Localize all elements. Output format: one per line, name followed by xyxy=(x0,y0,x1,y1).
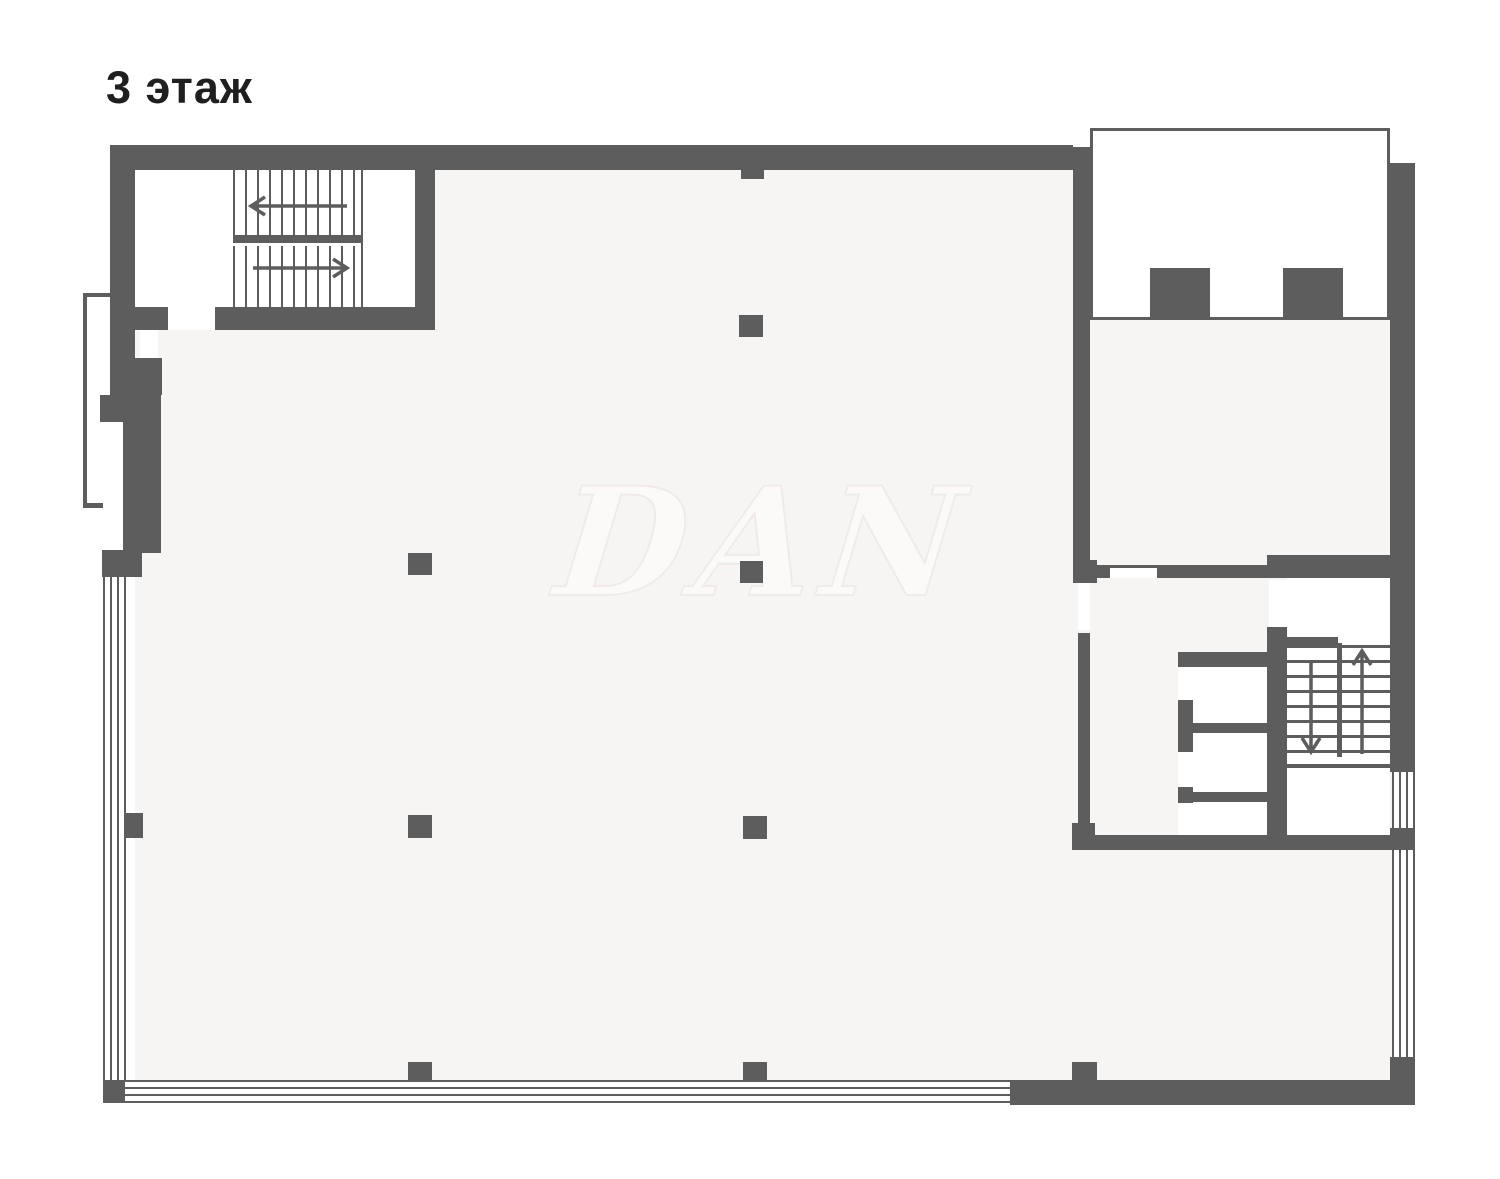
open-area xyxy=(1178,752,1193,787)
open-area xyxy=(1193,667,1267,835)
wall-segment xyxy=(1078,633,1090,835)
floor-area xyxy=(1090,320,1392,583)
wall-segment xyxy=(1193,723,1267,733)
stair-treads xyxy=(233,246,363,307)
wall-segment xyxy=(1157,565,1267,578)
open-area xyxy=(1287,768,1390,835)
open-area xyxy=(1178,803,1193,835)
wall-segment xyxy=(1073,147,1090,560)
wall-segment xyxy=(110,145,135,395)
wall-segment xyxy=(1267,555,1393,578)
stair-treads xyxy=(1287,645,1337,757)
wall-segment xyxy=(361,170,363,307)
wall-segment xyxy=(1283,268,1343,317)
wall-segment xyxy=(233,235,363,243)
open-area xyxy=(1110,568,1157,578)
wall-segment xyxy=(83,503,103,508)
wall-segment xyxy=(123,422,161,553)
wall-segment xyxy=(83,293,87,508)
wall-segment xyxy=(1178,792,1267,802)
window-glazing xyxy=(1392,848,1415,1057)
rooftop-room-outline xyxy=(1090,128,1390,320)
open-area xyxy=(1178,667,1193,700)
wall-segment xyxy=(215,307,435,330)
wall-segment xyxy=(1110,565,1157,568)
wall-segment xyxy=(1287,764,1390,768)
wall-segment xyxy=(1287,637,1338,645)
wall-segment xyxy=(408,815,432,838)
wall-segment xyxy=(1150,268,1210,317)
wall-segment xyxy=(1178,700,1193,752)
floor-plan-drawing: DAN xyxy=(0,0,1500,1179)
watermark: DAN xyxy=(550,468,966,618)
wall-segment xyxy=(102,550,142,577)
open-area xyxy=(168,307,215,330)
window-glazing xyxy=(103,577,126,1080)
wall-segment xyxy=(415,170,435,307)
wall-segment xyxy=(135,358,162,395)
wall-segment xyxy=(1073,560,1097,583)
wall-segment xyxy=(741,170,764,179)
stair-treads xyxy=(1342,645,1390,757)
wall-segment xyxy=(110,145,1073,170)
wall-segment xyxy=(408,553,432,575)
wall-segment xyxy=(1097,565,1110,578)
wall-segment xyxy=(1178,652,1287,667)
wall-segment xyxy=(1072,835,1390,850)
wall-segment xyxy=(1390,163,1415,772)
wall-segment xyxy=(739,315,763,337)
wall-segment xyxy=(100,395,161,422)
open-area xyxy=(1078,583,1090,630)
wall-segment xyxy=(103,1080,125,1103)
wall-segment xyxy=(1390,828,1415,850)
wall-segment xyxy=(83,293,110,297)
wall-segment xyxy=(110,307,168,330)
wall-segment xyxy=(126,813,143,838)
window-glazing xyxy=(1392,772,1415,828)
open-area xyxy=(1269,580,1287,627)
window-glazing xyxy=(103,1080,1010,1103)
wall-segment xyxy=(740,561,763,583)
wall-segment xyxy=(743,1062,767,1080)
floor-plan-page: 3 этаж DAN xyxy=(0,0,1500,1179)
wall-segment xyxy=(1337,643,1342,757)
wall-segment xyxy=(1072,823,1095,843)
wall-segment xyxy=(408,1062,432,1080)
open-area xyxy=(140,330,158,358)
stair-treads xyxy=(233,170,363,235)
wall-segment xyxy=(1072,1062,1097,1080)
wall-segment xyxy=(1010,1080,1413,1105)
wall-segment xyxy=(743,816,767,839)
